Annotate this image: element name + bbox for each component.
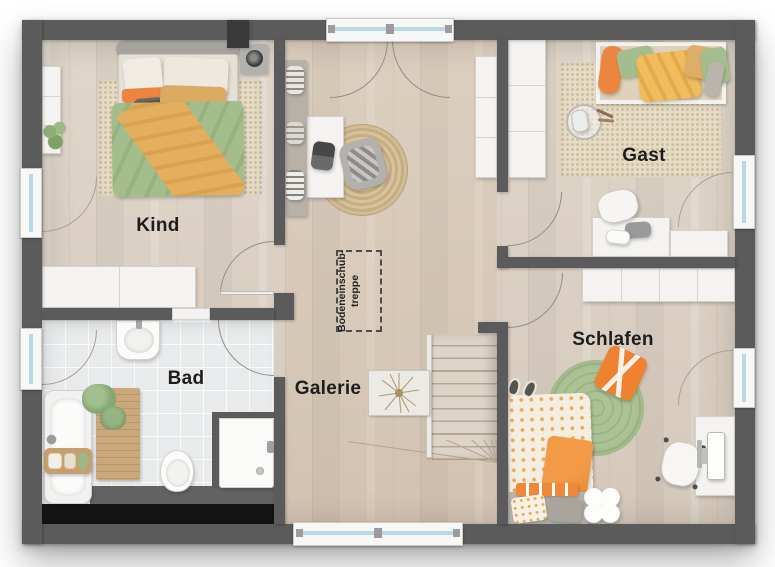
bath-towel-green-small	[100, 406, 126, 430]
window-handle	[453, 529, 460, 537]
wardrobe-seam	[509, 131, 545, 132]
bathtub-basin	[50, 398, 86, 496]
window-handle	[374, 528, 382, 538]
shower-drain	[256, 467, 264, 475]
schlafen-bench-orange	[516, 483, 578, 496]
room-label-kind: Kind	[136, 215, 179, 237]
wall-kind-galerie	[274, 40, 285, 245]
attic-stairs-label: Bodeneinschub- treppe	[336, 250, 382, 332]
wall-stair-schlafen	[497, 333, 508, 524]
washbasin	[116, 320, 160, 360]
wall-bad-galerie	[274, 377, 285, 524]
washbasin-bowl	[124, 327, 154, 353]
wardrobe-seam	[509, 85, 545, 86]
kind-door-leaf	[220, 291, 274, 295]
kind-duvet-green	[111, 101, 245, 197]
schlafen-imac-stand	[702, 448, 708, 464]
sideboard-seam	[119, 267, 120, 307]
book-stack	[286, 66, 304, 94]
toilet	[160, 450, 194, 492]
window-handle	[445, 25, 452, 33]
wardrobe-seam	[476, 137, 496, 138]
bathtub-caddy	[44, 448, 92, 474]
wall-gast-galerie	[497, 40, 508, 192]
wall-stair-stub	[478, 322, 508, 333]
kind-sideboard	[42, 266, 196, 308]
bathtub-faucet	[47, 435, 56, 444]
room-label-bad: Bad	[168, 368, 205, 390]
window-glass	[29, 174, 33, 232]
window-glass	[742, 354, 746, 402]
schlafen-wardrobe	[582, 268, 735, 302]
caddy-towel-roll	[64, 453, 76, 469]
gast-paper-sheet	[605, 229, 630, 245]
kind-speaker-table	[240, 44, 268, 74]
floor-plan: Kind Bodeneinschub- treppe Galerie	[0, 0, 775, 567]
bad-wall-niche-radiator	[172, 308, 210, 320]
room-label-schlafen: Schlafen	[572, 329, 654, 351]
wall-exterior-right	[735, 20, 755, 544]
galerie-wardrobe	[475, 56, 497, 178]
gast-desk-return	[670, 230, 728, 257]
wall-gast-schlafen	[497, 257, 735, 268]
window-handle	[328, 25, 335, 33]
schlafen-pillow-dotted	[510, 494, 547, 524]
schlafen-pillow-gray	[547, 497, 583, 524]
schlafen-flower-table	[583, 486, 621, 524]
room-label-gast: Gast	[622, 145, 665, 167]
wall-kind-corner-stub	[274, 293, 294, 320]
caddy-towel-roll	[48, 453, 62, 469]
book-stack	[286, 122, 304, 144]
staircase-winders	[340, 440, 497, 524]
window-glass	[742, 161, 746, 223]
shower-faucet	[267, 441, 274, 453]
wall-exterior-left	[22, 20, 42, 544]
window-glass	[29, 334, 33, 384]
washbasin-faucet	[136, 319, 142, 329]
attic-label-line1: Bodeneinschub-	[336, 250, 349, 332]
window-handle	[296, 529, 303, 537]
toilet-seat	[166, 459, 190, 487]
wardrobe-seam	[621, 269, 622, 301]
caddy-plant-sprig	[78, 452, 88, 470]
attic-label-line2: treppe	[349, 250, 362, 332]
wardrobe-seam	[43, 96, 61, 97]
wardrobe-seam	[697, 269, 698, 301]
shower-tray	[219, 418, 274, 488]
wardrobe-seam	[476, 97, 496, 98]
schlafen-imac-screen	[707, 432, 725, 480]
roof-void-black	[42, 504, 274, 524]
galerie-laptop	[310, 141, 336, 172]
room-label-galerie: Galerie	[295, 378, 362, 400]
wall-kind-bad-left	[42, 308, 172, 320]
dried-flowers-decor	[376, 370, 422, 416]
gast-wardrobe	[508, 38, 546, 178]
armchair-cushion	[345, 144, 380, 184]
chimney-block	[227, 20, 249, 48]
shower-partition-wall	[212, 412, 219, 488]
wardrobe-seam	[659, 269, 660, 301]
speaker-cone	[246, 50, 263, 67]
shower-partition-top	[212, 412, 274, 418]
wall-kind-bad-right	[210, 308, 274, 320]
kind-duvet-tan-band	[116, 101, 245, 197]
book-stack	[286, 170, 304, 200]
window-handle	[386, 24, 394, 34]
kind-plant	[40, 118, 68, 152]
schlafen-keyboard	[697, 440, 702, 468]
